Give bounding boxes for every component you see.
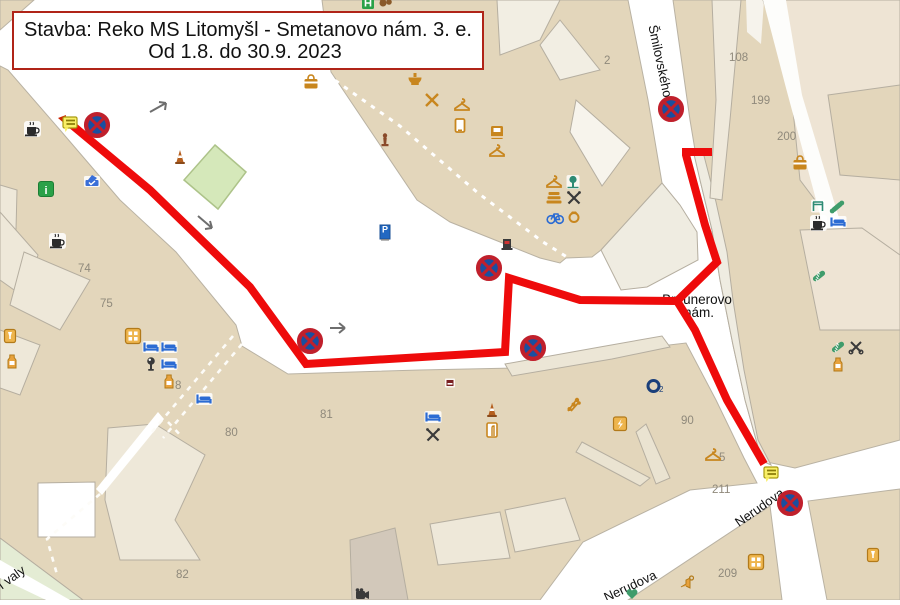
svg-text:8: 8 [175,380,181,392]
svg-text:2: 2 [604,55,610,67]
svg-text:90: 90 [681,415,694,427]
svg-text:Stavba: Reko MS Litomyšl - Sme: Stavba: Reko MS Litomyšl - Smetanovo nám… [24,19,472,41]
svg-text:81: 81 [320,409,333,421]
svg-text:74: 74 [78,263,91,275]
svg-text:209: 209 [718,568,737,580]
svg-text:82: 82 [176,569,189,581]
svg-text:108: 108 [729,52,748,64]
svg-text:75: 75 [100,298,113,310]
svg-text:Od 1.8. do 30.9. 2023: Od 1.8. do 30.9. 2023 [148,41,342,63]
svg-text:200: 200 [777,131,796,143]
svg-text:211: 211 [712,484,730,496]
svg-text:199: 199 [751,95,770,107]
svg-text:80: 80 [225,427,238,439]
